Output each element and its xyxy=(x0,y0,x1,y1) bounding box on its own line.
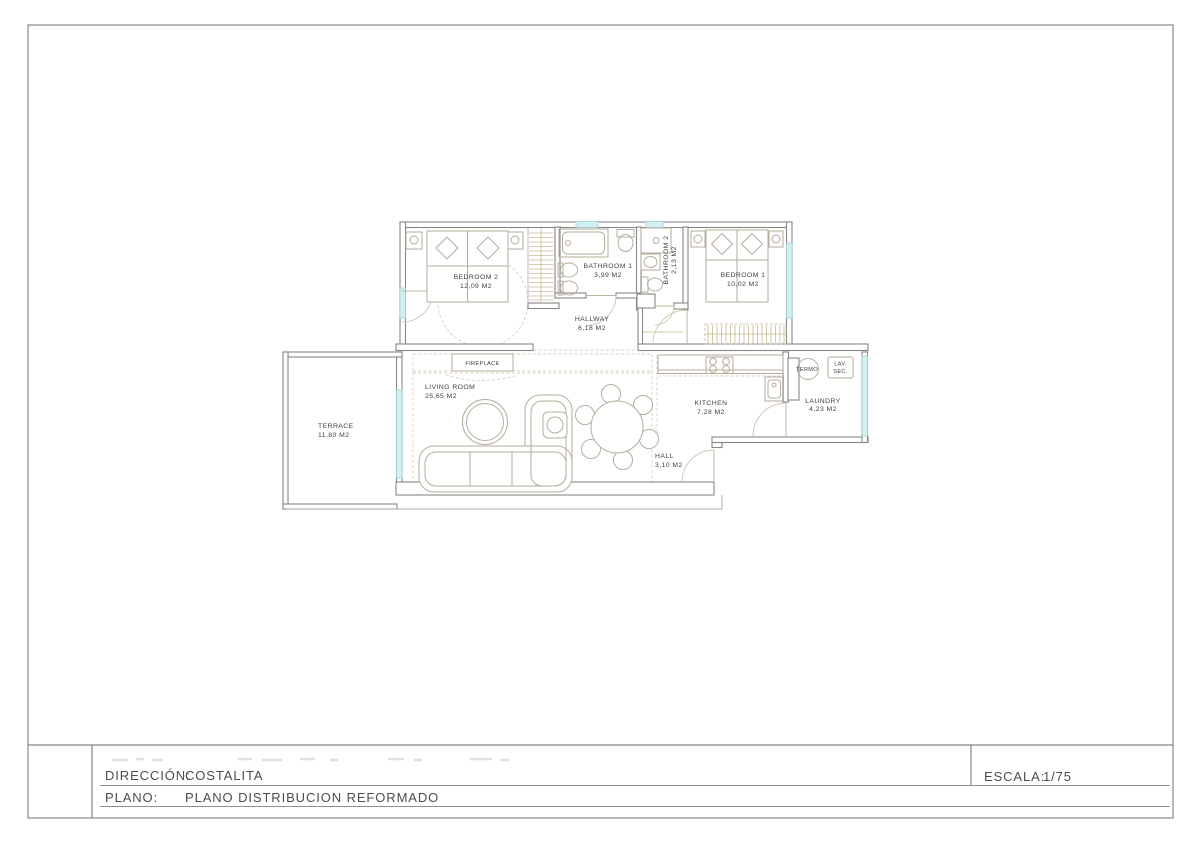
label-hall-name: HALL xyxy=(655,453,674,460)
label-living-area: 25,65 M2 xyxy=(425,393,457,400)
label-bedroom2-area: 12,09 M2 xyxy=(460,283,492,290)
label-kitchen-name: KITCHEN xyxy=(695,400,728,407)
label-laundry-name: LAUNDRY xyxy=(805,398,841,405)
label-bedroom1-name: BEDROOM 1 xyxy=(721,272,766,279)
label-bedroom1-area: 10,02 M2 xyxy=(727,281,759,288)
label-bathroom2-name: BATHROOM 2 xyxy=(663,236,670,285)
label-lav: LAV. xyxy=(834,362,847,368)
label-bedroom2-name: BEDROOM 2 xyxy=(454,274,499,281)
dining-table xyxy=(591,401,643,453)
label-fireplace: FIREPLACE xyxy=(465,361,499,367)
plano-label: PLANO: xyxy=(105,790,158,805)
floorplan-drawing: BEDROOM 2 12,09 M2 BATHROOM 1 3,99 M2 BA… xyxy=(0,0,1200,848)
direccion-value: COSTALITA xyxy=(185,768,263,783)
window-bathroom1 xyxy=(576,222,598,228)
direccion-label: DIRECCIÓN: xyxy=(105,768,191,783)
terrace-glass-door xyxy=(397,390,403,478)
label-bathroom1-area: 3,99 M2 xyxy=(594,272,622,279)
label-bathroom2-area: 2,13 M2 xyxy=(671,246,678,274)
sofa-bottom-arm xyxy=(419,446,572,492)
label-living-name: LIVING ROOM xyxy=(425,384,475,391)
label-kitchen-area: 7,28 M2 xyxy=(697,409,725,416)
escala-value: 1/75 xyxy=(1043,769,1072,784)
drawing-sheet: BEDROOM 2 12,09 M2 BATHROOM 1 3,99 M2 BA… xyxy=(0,0,1200,848)
label-hall-area: 3,10 M2 xyxy=(655,462,683,469)
plano-value: PLANO DISTRIBUCION REFORMADO xyxy=(185,790,439,805)
label-hallway-area: 6,18 M2 xyxy=(578,325,606,332)
escala-label: ESCALA: xyxy=(984,769,1045,784)
label-terrace-name: TERRACE xyxy=(318,423,354,430)
label-sec: SEC. xyxy=(833,369,848,375)
window-bedroom1 xyxy=(787,243,793,318)
window-bedroom2 xyxy=(400,288,406,318)
window-bathroom2 xyxy=(646,222,663,228)
window-laundry xyxy=(862,356,868,436)
label-hallway-name: HALLWAY xyxy=(575,316,609,323)
label-laundry-area: 4,23 M2 xyxy=(809,406,837,413)
label-terrace-area: 11,80 M2 xyxy=(318,432,349,439)
label-bathroom1-name: BATHROOM 1 xyxy=(584,263,633,270)
coffee-table xyxy=(463,400,508,445)
label-termo: TERMO xyxy=(796,367,818,373)
